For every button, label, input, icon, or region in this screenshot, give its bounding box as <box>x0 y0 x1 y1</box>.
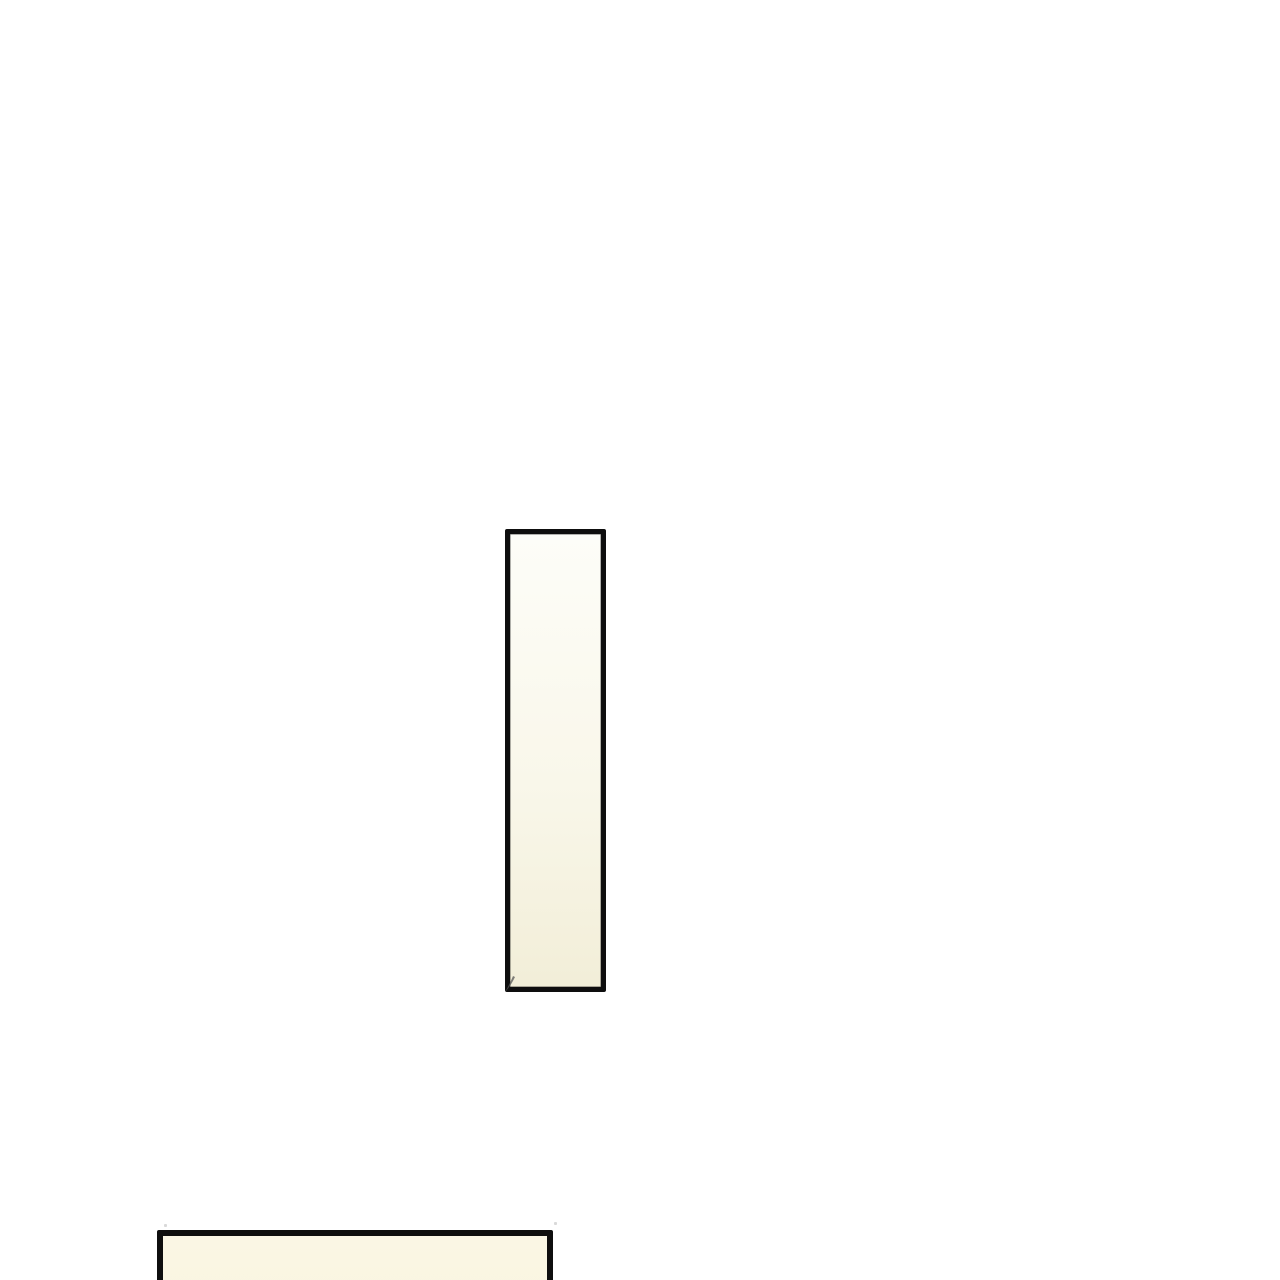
ink-speck-right <box>554 1222 557 1225</box>
ink-speck-left <box>164 1224 167 1227</box>
comic-panel-bottom <box>157 1230 553 1280</box>
comic-panel-tall <box>505 529 606 992</box>
brush-flick-stroke <box>503 975 517 993</box>
comic-page <box>0 0 1280 1280</box>
brush-flick-path <box>505 976 515 992</box>
